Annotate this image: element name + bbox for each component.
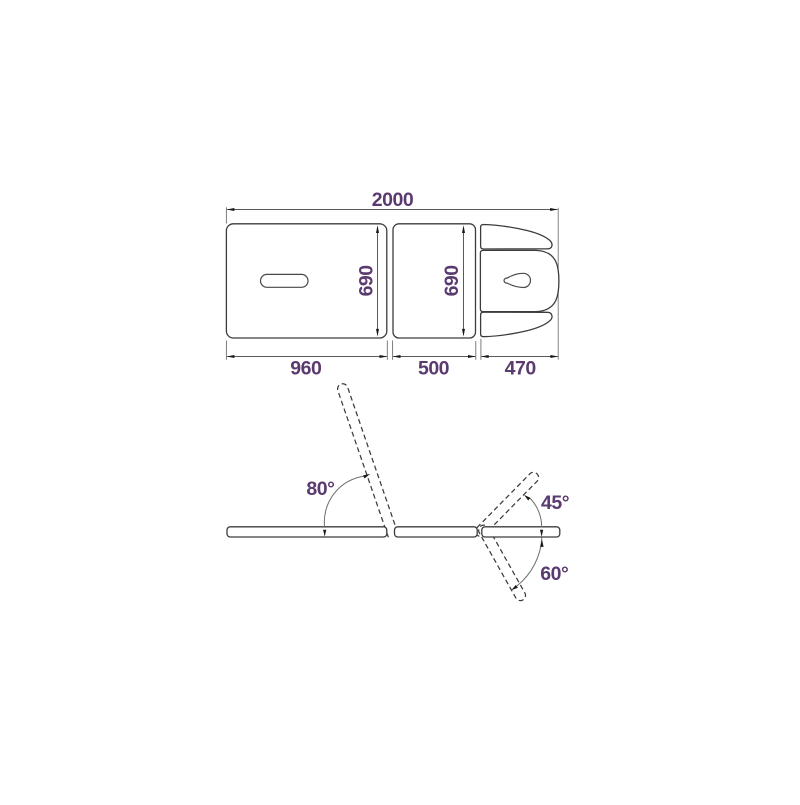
svg-text:45°: 45° <box>541 492 569 514</box>
svg-text:960: 960 <box>290 357 322 379</box>
svg-text:80°: 80° <box>306 478 334 500</box>
svg-text:60°: 60° <box>540 563 568 585</box>
svg-text:690: 690 <box>356 265 378 297</box>
svg-text:2000: 2000 <box>372 189 414 211</box>
svg-text:500: 500 <box>418 357 450 379</box>
svg-text:470: 470 <box>505 357 537 379</box>
svg-text:690: 690 <box>441 265 463 297</box>
